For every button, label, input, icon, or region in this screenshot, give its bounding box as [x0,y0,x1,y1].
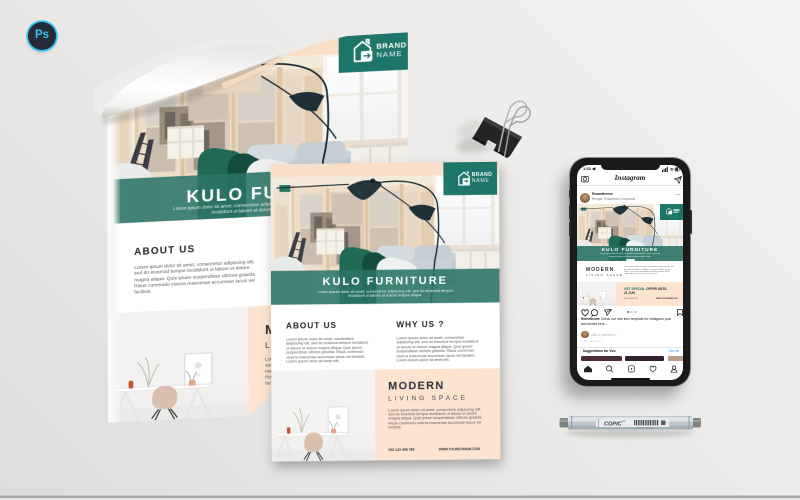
svg-text:4 511338 002049: 4 511338 002049 [634,427,654,430]
svg-text:COPIC: COPIC [604,421,623,427]
